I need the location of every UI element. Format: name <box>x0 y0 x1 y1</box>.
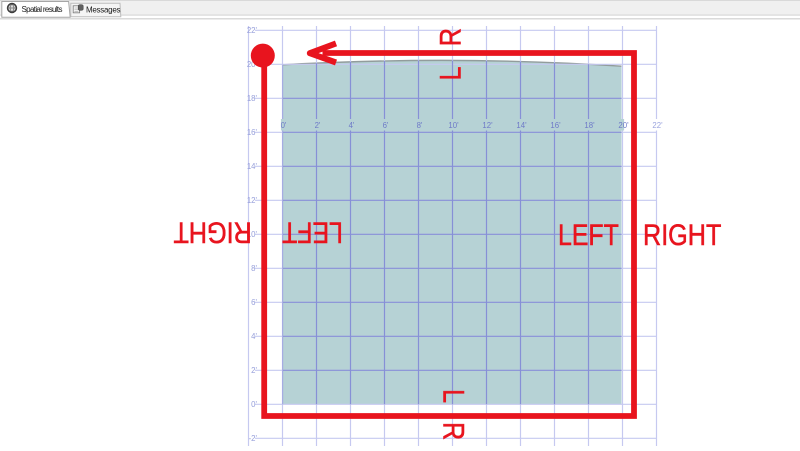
svg-text:RIGHT: RIGHT <box>173 216 251 250</box>
svg-text:R: R <box>437 422 471 440</box>
svg-text:4': 4' <box>251 332 257 341</box>
svg-text:-2': -2' <box>249 434 258 443</box>
svg-text:12': 12' <box>482 121 493 130</box>
svg-text:22': 22' <box>652 121 663 130</box>
svg-text:L: L <box>437 389 471 403</box>
svg-text:6': 6' <box>383 121 389 130</box>
svg-text:0': 0' <box>251 400 257 409</box>
svg-text:18': 18' <box>247 94 258 103</box>
svg-text:22': 22' <box>247 26 258 35</box>
svg-text:10': 10' <box>448 121 459 130</box>
svg-text:L: L <box>433 66 467 80</box>
svg-text:20': 20' <box>618 121 629 130</box>
svg-text:Messages: Messages <box>86 5 121 14</box>
svg-text:0': 0' <box>281 121 287 130</box>
svg-text:LEFT: LEFT <box>282 216 343 250</box>
svg-text:2': 2' <box>315 121 321 130</box>
svg-text:8': 8' <box>417 121 423 130</box>
svg-text:12': 12' <box>247 196 258 205</box>
svg-text:14': 14' <box>516 121 527 130</box>
svg-text:4': 4' <box>349 121 355 130</box>
svg-text:RIGHT: RIGHT <box>643 218 721 252</box>
svg-text:16': 16' <box>550 121 561 130</box>
svg-text:8': 8' <box>251 264 257 273</box>
svg-text:2': 2' <box>251 366 257 375</box>
svg-text:LEFT: LEFT <box>558 218 619 252</box>
svg-text:R: R <box>433 28 467 46</box>
svg-text:Spatial results: Spatial results <box>22 5 63 14</box>
svg-text:6': 6' <box>251 298 257 307</box>
svg-text:16': 16' <box>247 128 258 137</box>
svg-text:18': 18' <box>584 121 595 130</box>
svg-text:14': 14' <box>247 162 258 171</box>
